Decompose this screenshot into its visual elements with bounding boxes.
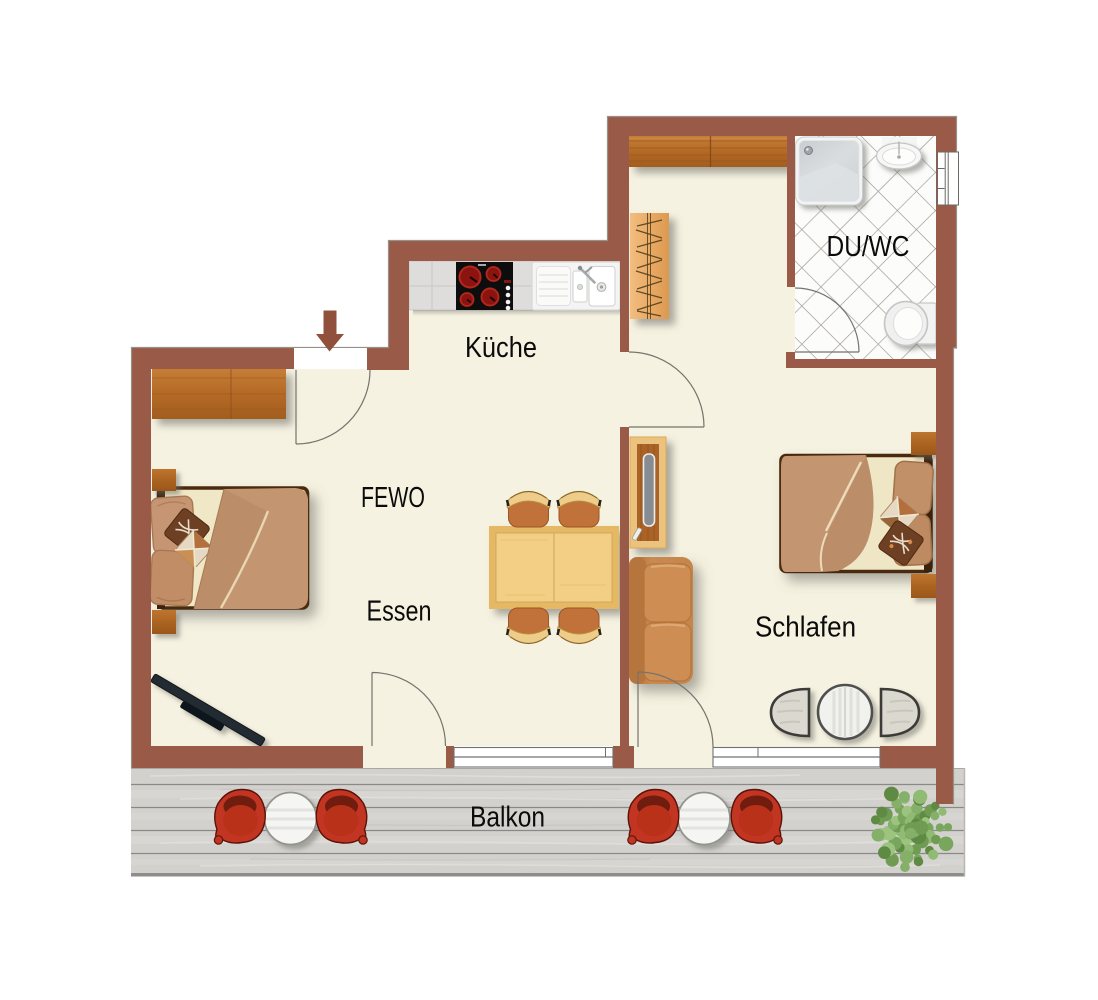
svg-text:Balkon: Balkon xyxy=(470,802,545,834)
svg-text:Küche: Küche xyxy=(465,332,537,364)
svg-text:Schlafen: Schlafen xyxy=(755,612,856,644)
svg-text:DU/WC: DU/WC xyxy=(827,231,910,263)
svg-text:FEWO: FEWO xyxy=(361,482,425,514)
svg-text:Essen: Essen xyxy=(367,596,432,628)
